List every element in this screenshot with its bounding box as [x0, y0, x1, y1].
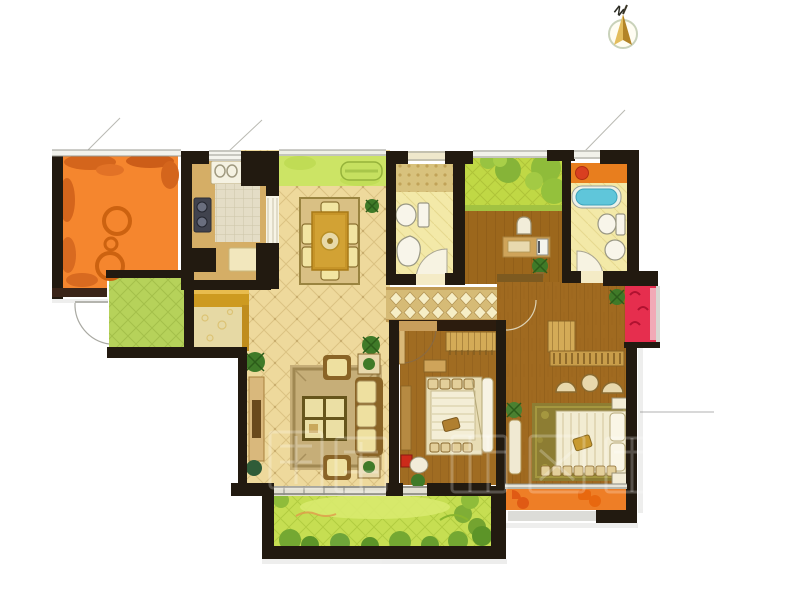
svg-text:N: N: [611, 3, 626, 19]
